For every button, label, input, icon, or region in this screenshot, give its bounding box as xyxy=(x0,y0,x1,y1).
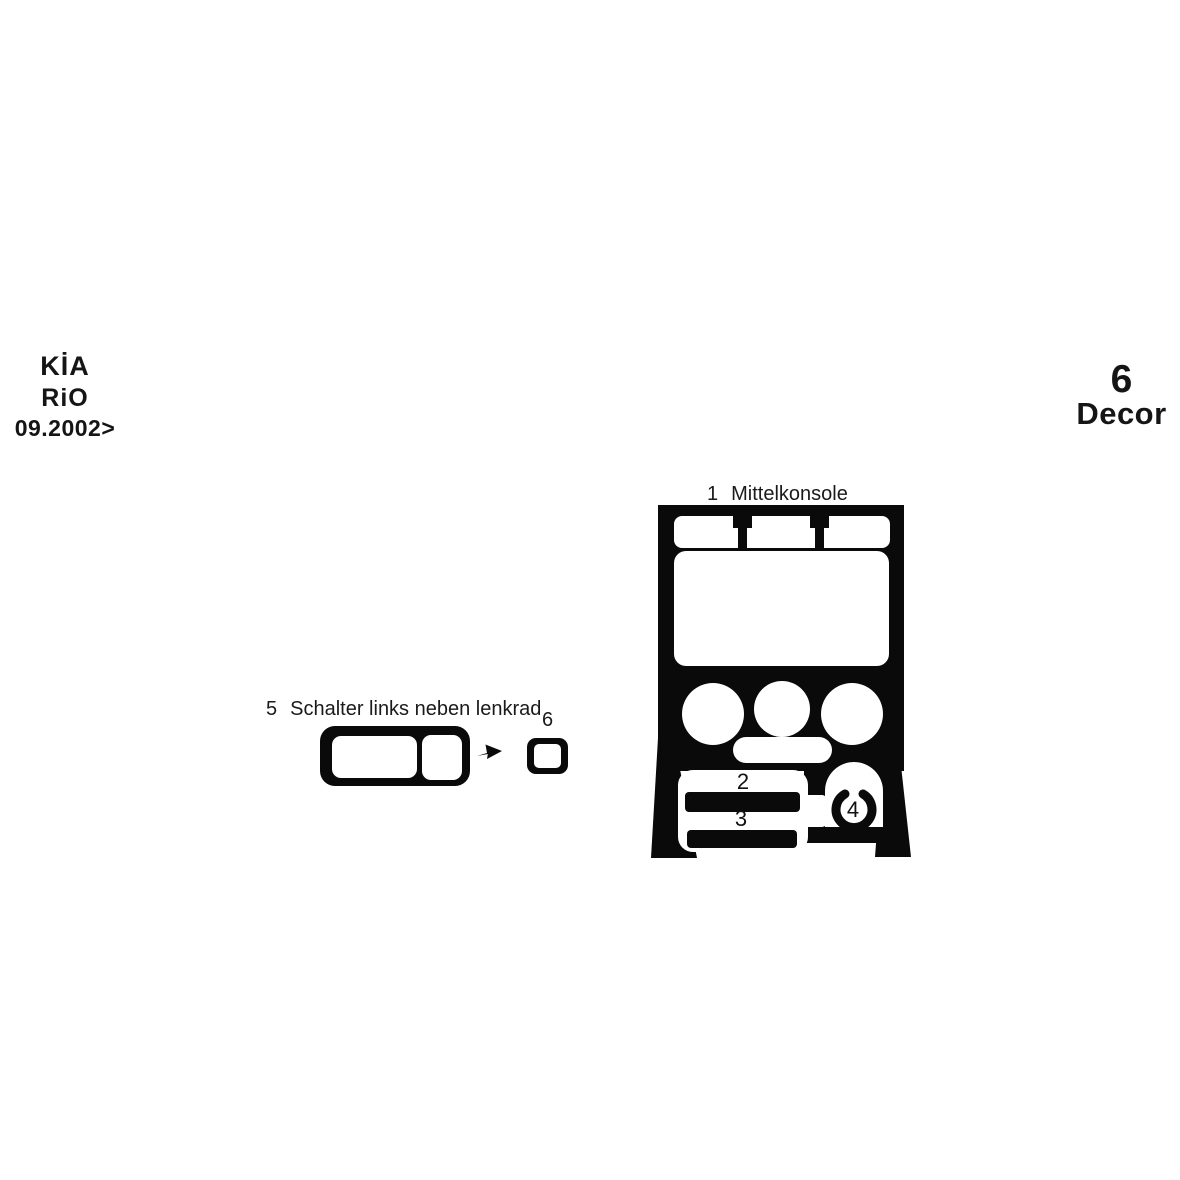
center-console-silhouette: 2 3 4 xyxy=(651,505,911,858)
hvac-knob-left xyxy=(682,683,744,745)
hvac-knob-center xyxy=(754,681,810,737)
part2-number: 2 xyxy=(737,769,749,794)
part4-number: 4 xyxy=(847,797,859,822)
part3-number: 3 xyxy=(735,806,747,831)
switch-slot-pill xyxy=(733,737,832,763)
vent-divider-stem-right xyxy=(815,516,824,549)
arrow-right-icon xyxy=(477,745,502,760)
handbrake-channel xyxy=(800,795,827,827)
part5-opening-right xyxy=(422,735,462,780)
vent-slot-row xyxy=(674,516,890,548)
part5-switch-panel xyxy=(320,726,470,786)
part6-opening xyxy=(534,744,561,768)
diagram-shapes: 2 3 4 xyxy=(0,0,1180,1180)
part3-trim-strip xyxy=(687,830,797,848)
vent-divider-stem-left xyxy=(738,516,747,549)
radio-opening xyxy=(674,551,889,666)
part5-opening-left xyxy=(332,736,417,778)
part6-switch-frame xyxy=(527,738,568,774)
dash-trim-kit-diagram: KİA RiO 09.2002> 6 Decor 1 Mittelkonsole… xyxy=(0,0,1180,1180)
hvac-knob-right xyxy=(821,683,883,745)
